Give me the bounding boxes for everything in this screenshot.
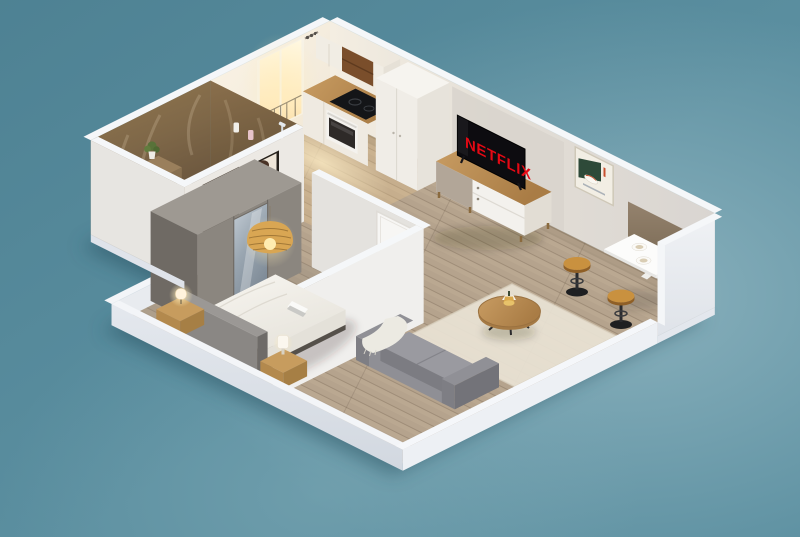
soap-dispenser-white — [234, 123, 240, 133]
soap-dispenser-pink — [248, 130, 254, 140]
stool-seat-wood — [564, 257, 591, 270]
east-wall-cut-face — [658, 242, 665, 326]
pendant-bulb — [264, 238, 276, 250]
stool-seat-wood-2 — [608, 290, 635, 303]
isometric-apartment-scene: NETFLIX — [0, 0, 800, 537]
table-lamp-right — [278, 336, 289, 349]
apartment-render-stage: NETFLIX — [0, 0, 800, 537]
table-lamp-left — [176, 289, 187, 300]
